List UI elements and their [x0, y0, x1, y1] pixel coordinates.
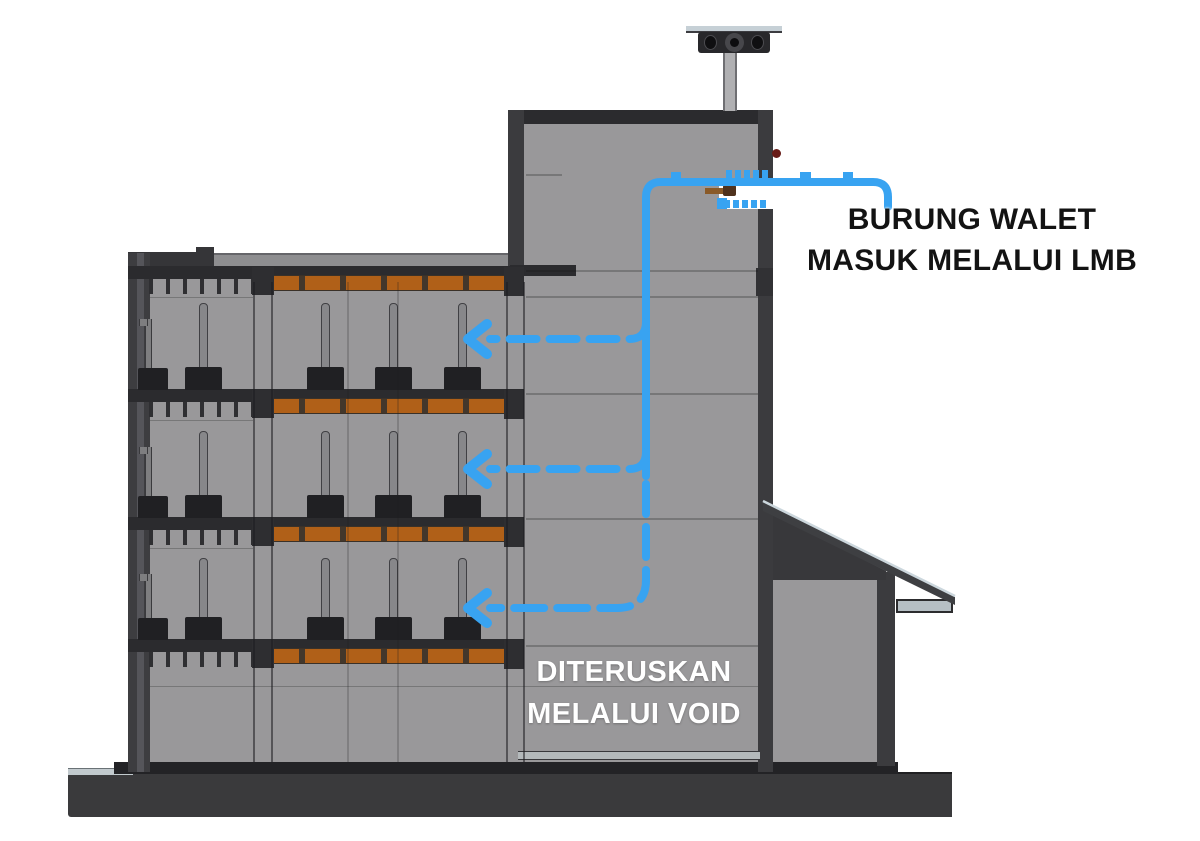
- void-annotation: DITERUSKAN MELALUI VOID: [508, 651, 760, 735]
- flow-branch-floor3-dashed: [490, 322, 646, 339]
- arrowhead-floor3-icon: [468, 324, 487, 354]
- flow-branch-floor2-dashed: [490, 452, 646, 469]
- swiftlet-house-section-diagram: BURUNG WALET MASUK MELALUI LMB DITERUSKA…: [0, 0, 1200, 841]
- void-annotation-line2: MELALUI VOID: [508, 693, 760, 735]
- perch-stick-tip: [723, 185, 736, 196]
- void-annotation-line1: DITERUSKAN: [508, 651, 760, 693]
- entry-annotation: BURUNG WALET MASUK MELALUI LMB: [782, 199, 1162, 281]
- entry-annotation-line2: MASUK MELALUI LMB: [782, 240, 1162, 281]
- entry-annotation-line1: BURUNG WALET: [782, 199, 1162, 240]
- arrowhead-floor2-icon: [468, 454, 487, 484]
- arrowhead-floor1-icon: [468, 593, 487, 623]
- flow-void-down-dashed: [490, 484, 646, 608]
